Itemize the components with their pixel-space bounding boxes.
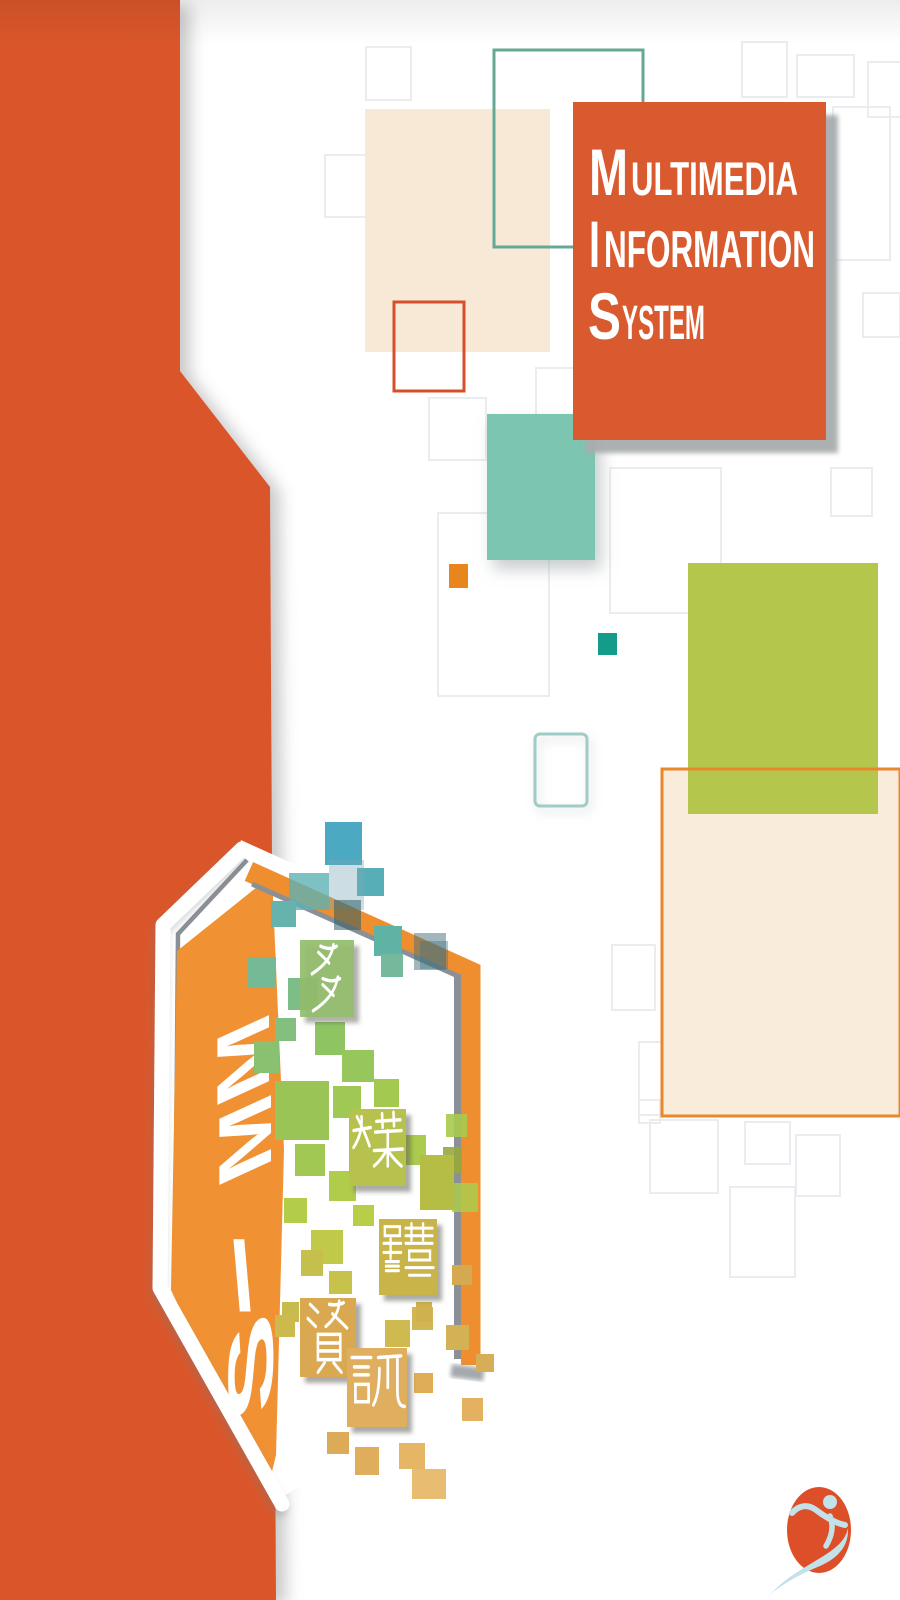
svg-text:I: I — [589, 207, 600, 281]
svg-text:ULTIMEDIA: ULTIMEDIA — [631, 152, 798, 205]
svg-text:M: M — [589, 135, 628, 209]
svg-text:S: S — [588, 279, 621, 353]
svg-text:YSTEM: YSTEM — [622, 297, 705, 350]
svg-text:NFORMATION: NFORMATION — [604, 221, 815, 279]
